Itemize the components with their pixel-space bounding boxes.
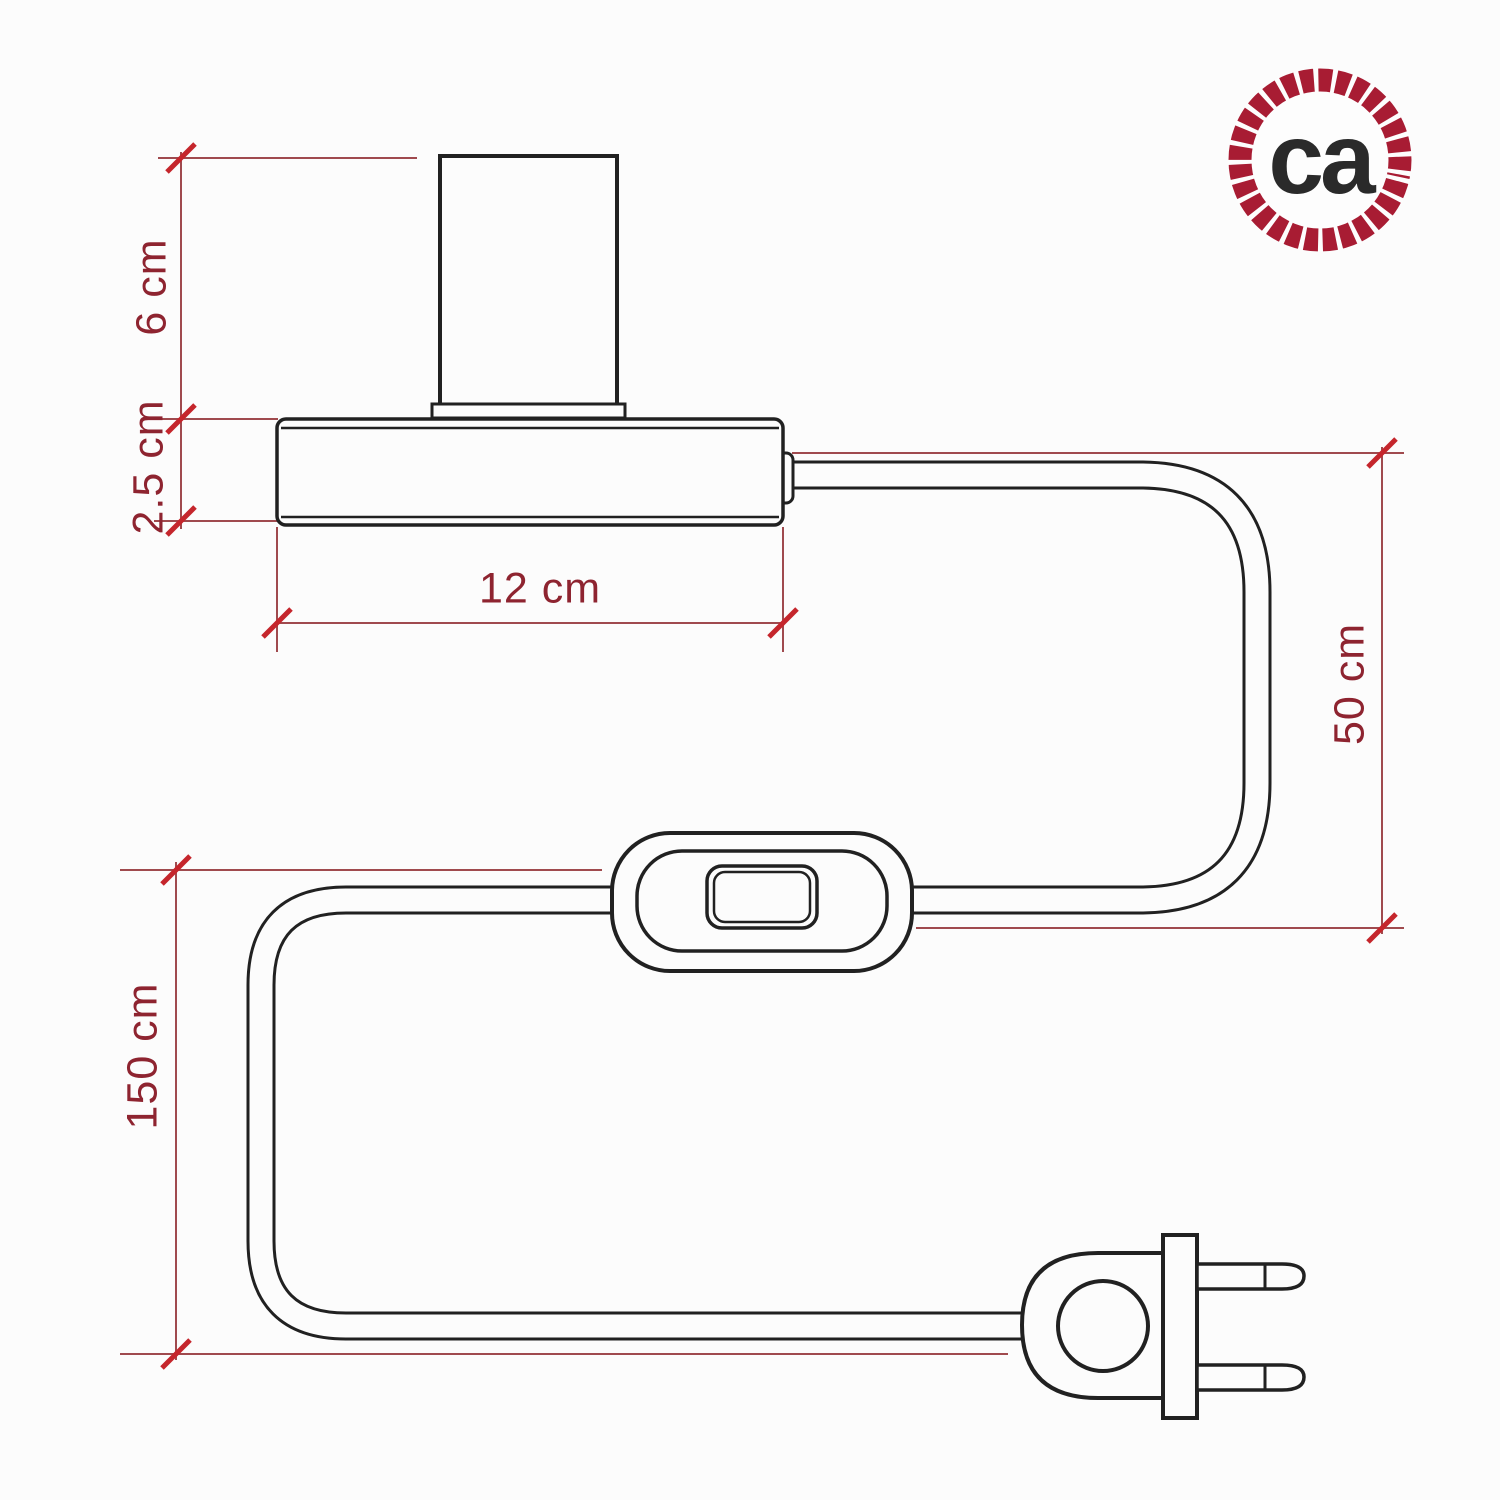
inline-switch xyxy=(612,833,912,971)
dim-label-base-width: 12 cm xyxy=(479,565,601,614)
dimension-lines xyxy=(120,152,1404,1360)
dim-label-cable-50cm: 50 cm xyxy=(1326,623,1375,745)
plug-face-plate xyxy=(1163,1235,1197,1418)
lamp-assembly xyxy=(277,156,793,525)
plug-pin-bottom xyxy=(1197,1365,1304,1390)
plug-pin-top xyxy=(1197,1264,1304,1289)
rocker-button xyxy=(707,866,817,928)
lamp-dimension-diagram: 6 cm 2.5 cm 12 cm 50 cm 150 cm ca xyxy=(0,0,1500,1500)
dim-label-socket-height: 6 cm xyxy=(128,238,177,335)
tick-marks xyxy=(162,144,1396,1368)
plug-body xyxy=(1022,1253,1163,1398)
lamp-base xyxy=(277,419,783,525)
plug xyxy=(1022,1235,1304,1418)
socket-flange xyxy=(432,404,625,418)
dim-label-cable-150cm: 150 cm xyxy=(119,982,168,1129)
logo-text: ca xyxy=(1268,102,1371,217)
diagram-canvas xyxy=(0,0,1500,1500)
lamp-socket xyxy=(440,156,617,408)
dim-label-base-thickness: 2.5 cm xyxy=(125,399,174,534)
